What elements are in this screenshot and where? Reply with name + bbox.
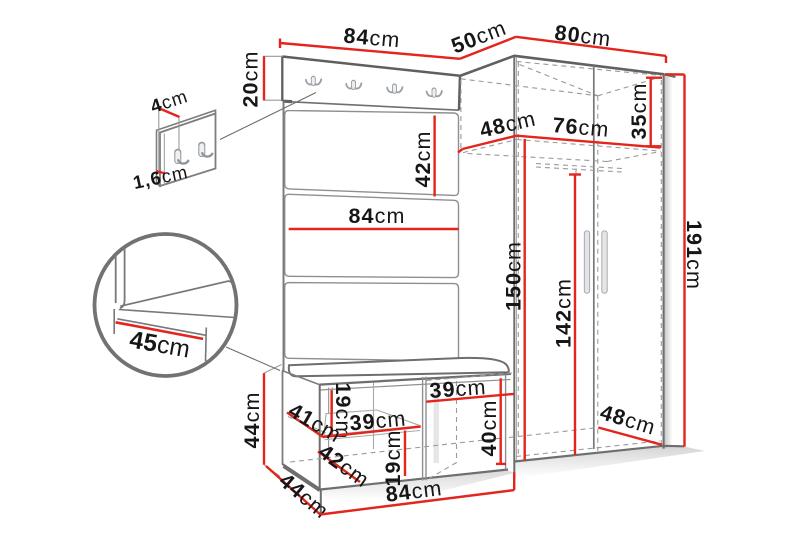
svg-text:142cm: 142cm (552, 278, 576, 348)
svg-text:20cm: 20cm (239, 51, 263, 108)
svg-text:84cm: 84cm (343, 24, 402, 53)
svg-text:42cm: 42cm (411, 131, 435, 188)
svg-text:35cm: 35cm (627, 83, 651, 140)
svg-text:191cm: 191cm (682, 220, 706, 290)
svg-text:44cm: 44cm (240, 392, 264, 449)
svg-text:150cm: 150cm (502, 241, 526, 311)
svg-text:19cm: 19cm (381, 430, 405, 487)
svg-text:39cm: 39cm (429, 375, 488, 403)
svg-text:40cm: 40cm (477, 400, 501, 457)
svg-text:84cm: 84cm (349, 204, 406, 228)
svg-text:76cm: 76cm (552, 113, 611, 142)
